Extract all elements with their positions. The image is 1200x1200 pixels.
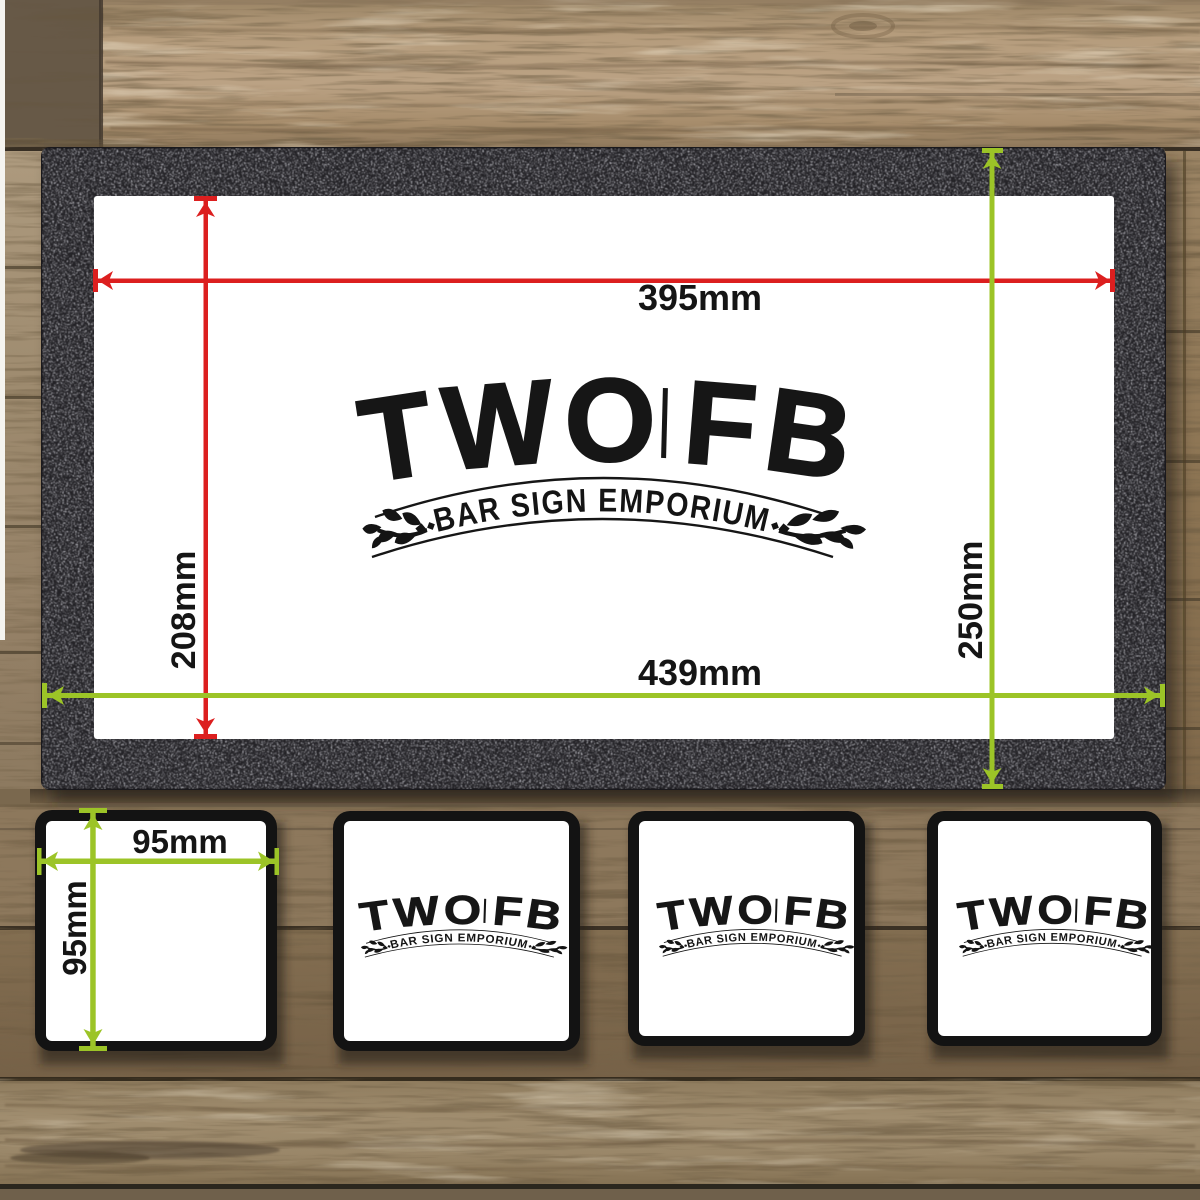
svg-text:439mm: 439mm xyxy=(638,652,762,693)
svg-text:95mm: 95mm xyxy=(56,880,93,975)
svg-text:95mm: 95mm xyxy=(132,823,227,860)
svg-text:208mm: 208mm xyxy=(165,551,203,670)
svg-text:395mm: 395mm xyxy=(638,277,762,318)
svg-text:250mm: 250mm xyxy=(952,541,990,660)
